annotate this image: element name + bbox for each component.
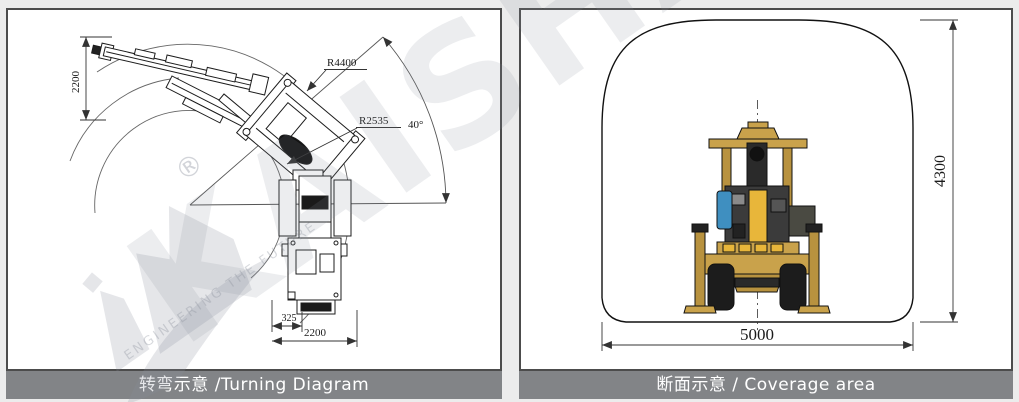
- turning-diagram-drawing: 2200 R4400 R2535 40° 325: [8, 10, 500, 369]
- swing-angle-label: 40°: [408, 119, 423, 131]
- dim-boom-rise-label: 2200: [70, 71, 82, 94]
- machine-top-view: [91, 37, 365, 314]
- turning-caption-bar: 转弯示意 /Turning Diagram: [6, 371, 502, 399]
- machine-front-view: [684, 122, 830, 313]
- right-wheel: [780, 264, 806, 310]
- dim-track-width-label: 2200: [304, 327, 327, 339]
- left-wheel: [708, 264, 734, 310]
- chassis: [695, 254, 819, 310]
- turning-diagram-panel: 2200 R4400 R2535 40° 325: [6, 8, 502, 371]
- coverage-caption-text: 断面示意 / Coverage area: [656, 375, 875, 395]
- drawing-sheet: 2200 R4400 R2535 40° 325: [0, 0, 1019, 402]
- coverage-area-panel: 4300 5000: [519, 8, 1013, 371]
- dim-tunnel-height-label: 4300: [932, 155, 949, 187]
- turning-caption-text: 转弯示意 /Turning Diagram: [139, 375, 369, 395]
- deck-band: [717, 242, 799, 254]
- power-unit: [717, 143, 815, 242]
- dim-tunnel-width-label: 5000: [740, 325, 774, 344]
- cab-blue-panel: [717, 191, 732, 229]
- coverage-caption-bar: 断面示意 / Coverage area: [519, 371, 1013, 399]
- dim-rear-offset-label: 325: [282, 313, 297, 324]
- rear-chassis: [279, 170, 351, 314]
- inner-radius-label: R2535: [359, 115, 389, 127]
- outer-radius-label: R4400: [327, 57, 357, 69]
- coverage-area-drawing: 4300 5000: [521, 10, 1011, 369]
